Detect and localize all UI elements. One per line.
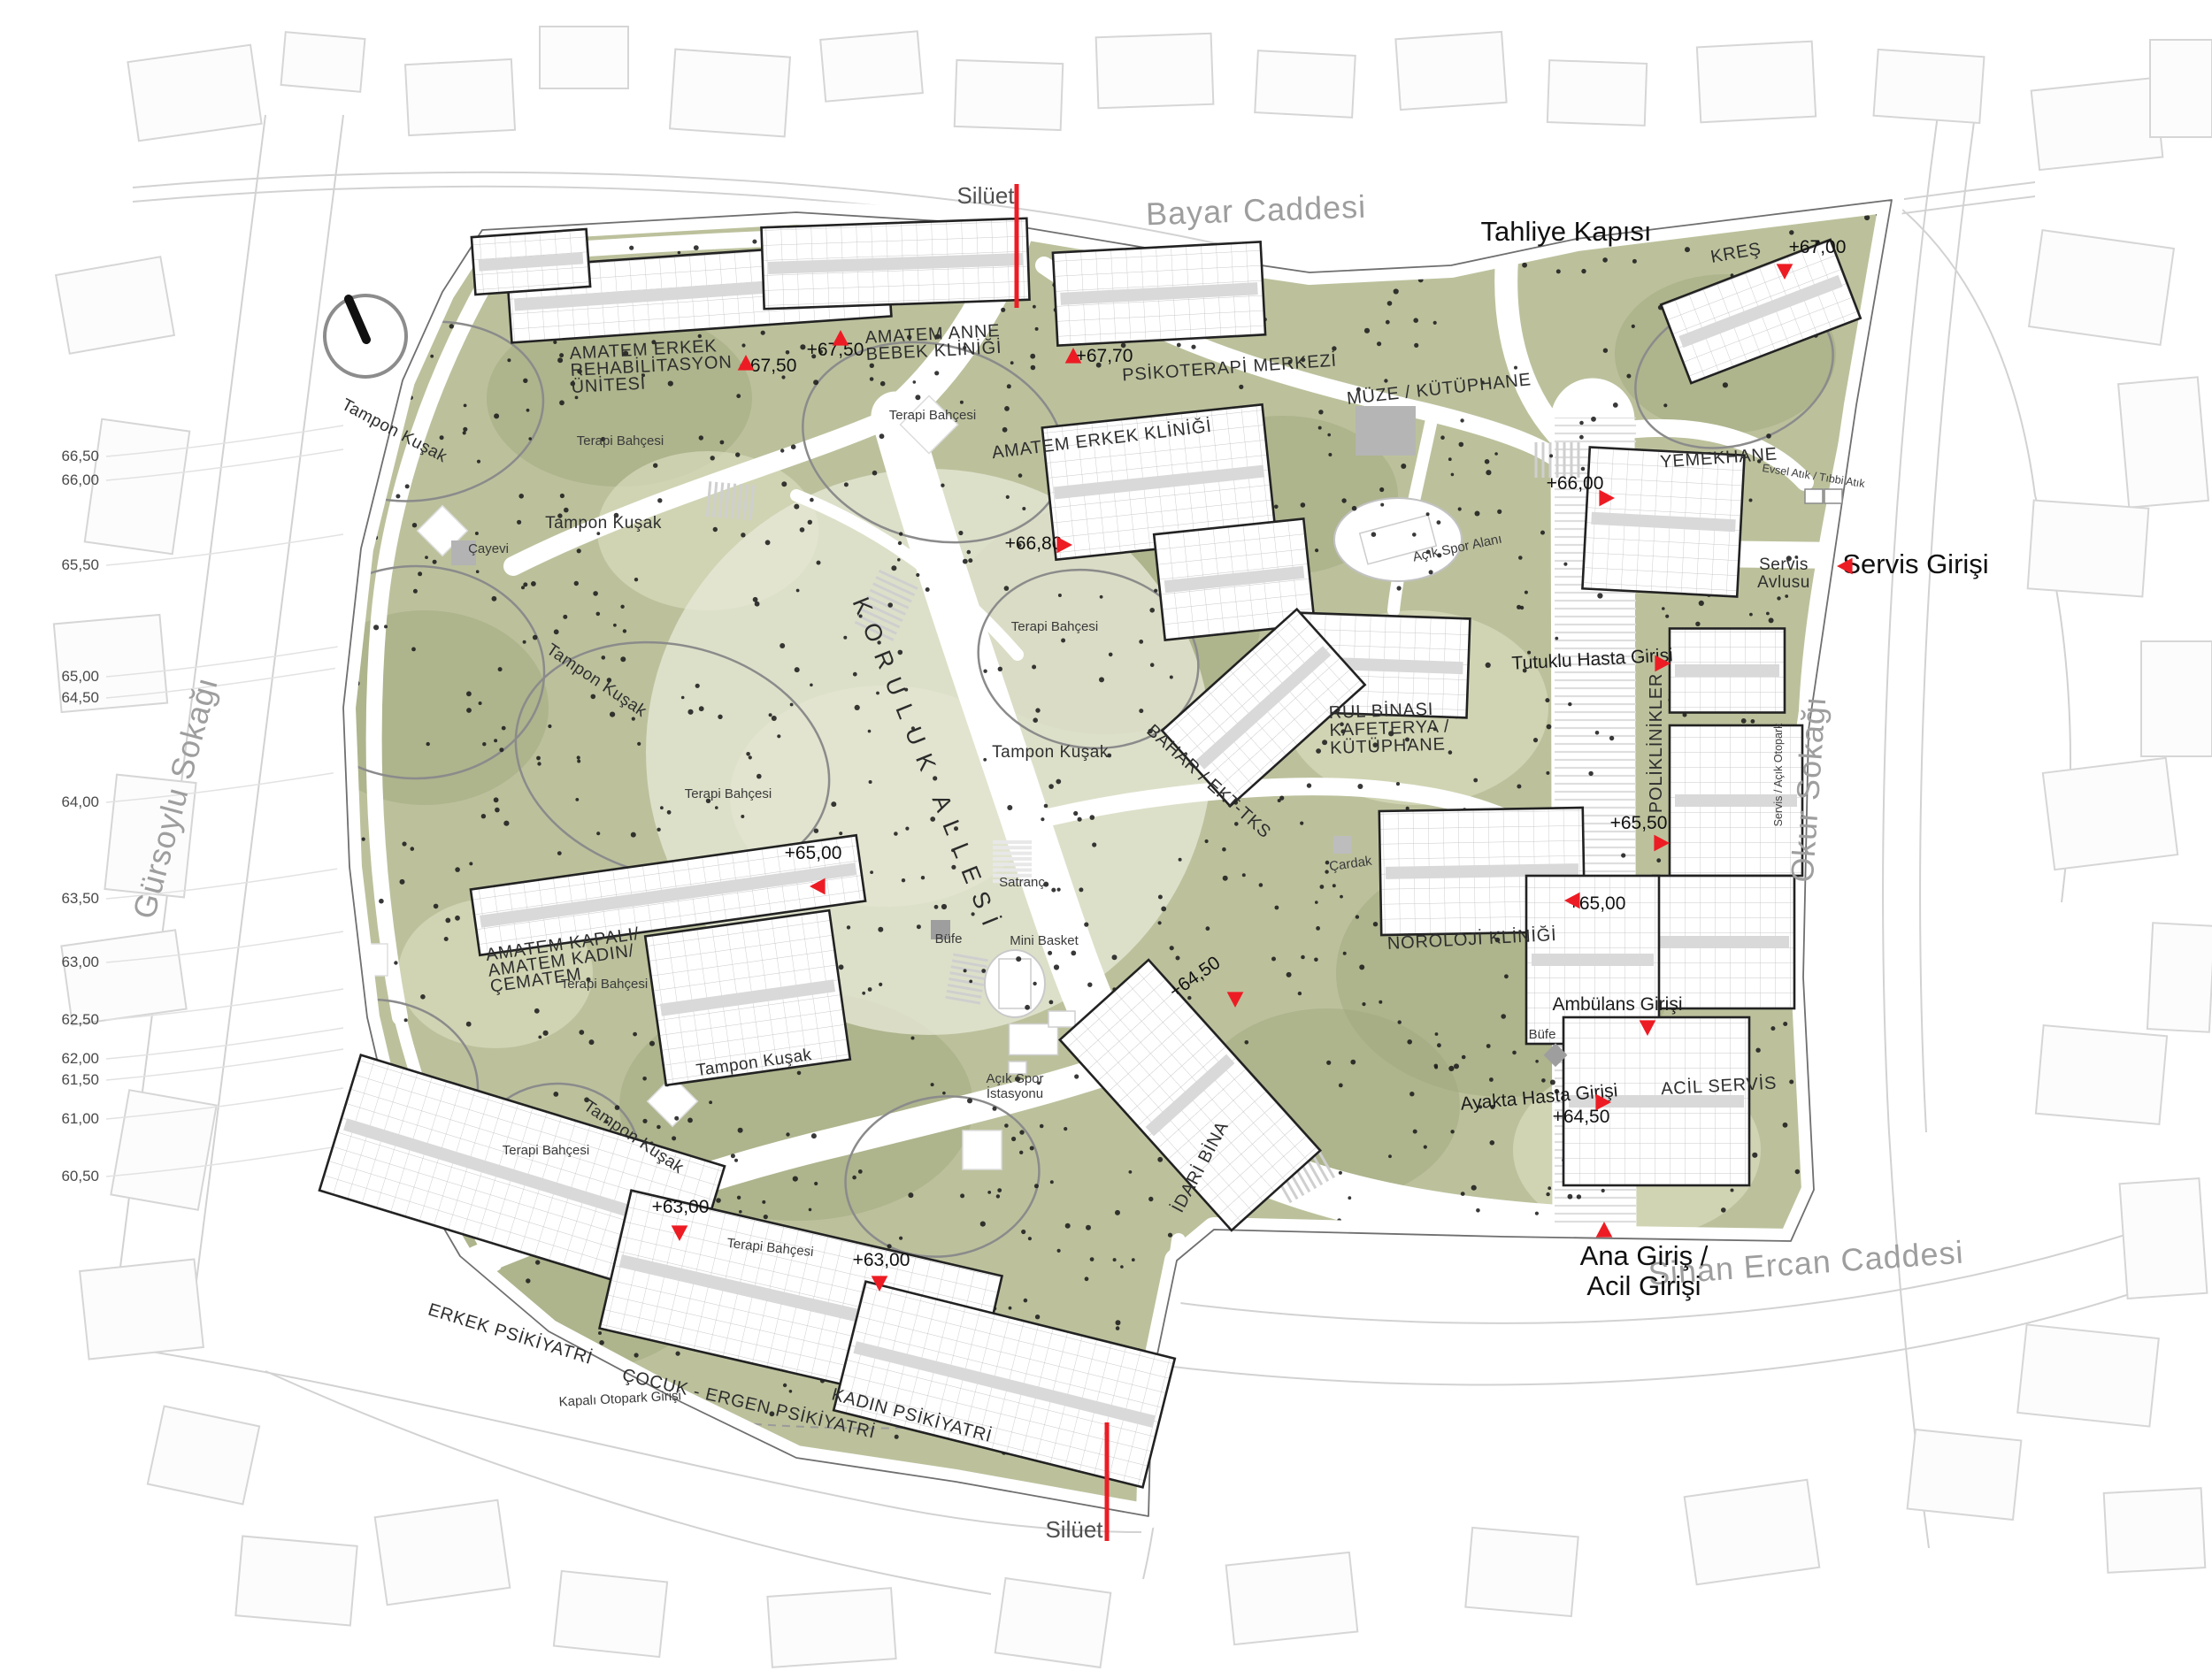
terapi-bahcesi-label-2-text: Terapi Bahçesi <box>1011 619 1098 634</box>
contour-label-3: 65,00 <box>61 668 99 685</box>
spot-elevation-12: +63,00 <box>853 1250 910 1270</box>
contour-label-0-text: 66,50 <box>61 448 99 464</box>
north-compass <box>325 295 406 377</box>
context-building <box>127 45 261 142</box>
context-building <box>1908 1430 2022 1520</box>
terapi-bahcesi-label-0-text: Terapi Bahçesi <box>577 433 664 448</box>
contour-label-10-text: 61,50 <box>61 1071 99 1088</box>
context-building <box>2118 377 2208 507</box>
feature-label-servis-avlusu-text: Servis <box>1759 556 1809 574</box>
bld-amatem-anne-bebek <box>761 218 1029 309</box>
bld-psikoterapi-merkezi <box>1053 241 1265 345</box>
spot-elevation-11: +63,00 <box>652 1197 710 1217</box>
context-building <box>405 59 515 135</box>
spot-elevation-6: +65,50 <box>1610 813 1668 833</box>
feature-label-servis-acik-otopark: Servis / Açık Otopark <box>1772 723 1785 826</box>
context-building <box>2104 1488 2206 1573</box>
contour-label-6: 63,50 <box>61 890 99 907</box>
entrance-label-tahliye-kapisi-text: Tahliye Kapısı <box>1481 216 1652 247</box>
building-label-poliklinikler: POLİKLİNİKLER <box>1646 673 1666 813</box>
contour-label-11: 61,00 <box>61 1110 99 1127</box>
feature-label-bufe-2-text: Büfe <box>1529 1027 1556 1042</box>
spot-elevation-5-text: +66,00 <box>1547 473 1604 494</box>
feature-label-satranc-text: Satranç <box>999 875 1045 890</box>
garden-platform <box>963 1131 1002 1169</box>
contour-label-12: 60,50 <box>61 1168 99 1184</box>
context-building <box>2028 501 2149 597</box>
spot-elevation-4-text: +66,80 <box>1005 533 1063 554</box>
feature-label-servis-avlusu-text: Avlusu <box>1757 573 1810 592</box>
context-building <box>1226 1552 1358 1644</box>
contour-label-8-text: 62,50 <box>61 1011 99 1028</box>
spot-elevation-8: +65,00 <box>785 843 842 863</box>
tampon-kusak-label-0-text: Tampon Kuşak <box>545 514 662 533</box>
building-label-amatem-erkek-rehabilitasyon-text: ÜNİTESİ <box>571 373 647 397</box>
spot-elevation-8-text: +65,00 <box>785 843 842 863</box>
feature-label-cayevi: Çayevi <box>468 541 509 556</box>
muze-kutuphane-footprint <box>1356 406 1416 456</box>
feature-label-bufe-1-text: Büfe <box>935 931 963 947</box>
contour-label-8: 62,50 <box>61 1011 99 1028</box>
context-building <box>1465 1528 1578 1616</box>
bld-amatem-rehab-wing <box>472 229 590 295</box>
feature-label-bufe-2: Büfe <box>1529 1027 1556 1042</box>
contour-label-11-text: 61,00 <box>61 1110 99 1127</box>
street-label-bayar-caddesi-text: Bayar Caddesi <box>1145 188 1366 233</box>
spot-elevation-3-text: +67,00 <box>1789 237 1847 257</box>
building-label-amatem-anne-bebek: AMATEM ANNEBEBEK KLİNİĞİ <box>864 321 1002 364</box>
contour-label-2-text: 65,50 <box>61 556 99 573</box>
entrance-label-ana-giris-text: Acil Girişi <box>1586 1270 1701 1301</box>
contour-label-7-text: 63,00 <box>61 954 99 970</box>
spot-elevation-12-text: +63,00 <box>853 1250 910 1270</box>
context-building <box>2120 1178 2208 1299</box>
context-building <box>1548 60 1647 126</box>
contour-label-1-text: 66,00 <box>61 471 99 488</box>
feature-label-acik-spor-istasyonu-text: Açık Spor <box>986 1071 1043 1086</box>
building-label-poliklinikler-text: POLİKLİNİKLER <box>1646 673 1666 813</box>
context-building <box>995 1578 1111 1667</box>
context-building <box>955 60 1064 130</box>
spot-elevation-10: +64,50 <box>1553 1107 1610 1127</box>
context-building <box>375 1500 511 1606</box>
contour-label-12-text: 60,50 <box>61 1168 99 1184</box>
feature-label-cayevi-text: Çayevi <box>468 541 509 556</box>
entrance-label-servis-girisi-text: Servis Girişi <box>1842 548 1988 579</box>
contour-label-9-text: 62,00 <box>61 1050 99 1067</box>
gate-label-ambulans-girisi-text: Ambülans Girişi <box>1552 994 1682 1015</box>
terapi-bahcesi-label-3: Terapi Bahçesi <box>685 786 772 801</box>
feature-label-acik-spor-istasyonu: Açık Sporİstasyonu <box>986 1071 1043 1101</box>
entrance-label-ana-giris-text: Ana Giriş / <box>1580 1240 1709 1271</box>
terapi-bahcesi-label-3-text: Terapi Bahçesi <box>685 786 772 801</box>
contour-label-6-text: 63,50 <box>61 890 99 907</box>
feature-label-mini-basket-text: Mini Basket <box>1010 933 1079 948</box>
context-building <box>820 31 923 101</box>
feature-label-bufe-1: Büfe <box>935 931 963 947</box>
entrance-label-ana-giris: Ana Giriş /Acil Girişi <box>1580 1240 1709 1301</box>
bld-poliklinik-c <box>1653 876 1794 1008</box>
spot-elevation-2-text: +67,70 <box>1076 346 1133 366</box>
terapi-bahcesi-label-4: Terapi Bahçesi <box>561 977 648 992</box>
atik-unit-b <box>1824 489 1842 503</box>
entrance-label-tahliye-kapisi: Tahliye Kapısı <box>1481 216 1652 247</box>
context-building <box>111 1090 216 1210</box>
context-building <box>1096 34 1214 108</box>
context-building <box>1697 42 1816 123</box>
section-label-siluet-bottom: Silüet <box>1045 1516 1103 1543</box>
context-building <box>1255 50 1356 118</box>
contour-label-7: 63,00 <box>61 954 99 970</box>
context-building <box>1395 32 1506 110</box>
context-building <box>540 27 628 88</box>
spot-elevation-11-text: +63,00 <box>652 1197 710 1217</box>
context-building <box>2017 1324 2159 1426</box>
terapi-bahcesi-label-1: Terapi Bahçesi <box>889 408 976 423</box>
feature-label-satranc: Satranç <box>999 875 1045 890</box>
section-label-siluet-top: Silüet <box>956 182 1015 209</box>
contour-label-4: 64,50 <box>61 689 99 706</box>
feature-label-servis-acik-otopark-text: Servis / Açık Otopark <box>1772 723 1785 826</box>
context-building <box>281 32 365 92</box>
contour-label-1: 66,00 <box>61 471 99 488</box>
feature-label-acik-spor-istasyonu-text: İstasyonu <box>987 1085 1043 1101</box>
context-building <box>554 1571 667 1657</box>
spot-elevation-3: +67,00 <box>1789 237 1847 257</box>
spot-elevation-4: +66,80 <box>1005 533 1063 554</box>
context-building <box>1685 1480 1820 1585</box>
context-building <box>767 1588 895 1667</box>
terapi-bahcesi-label-5-text: Terapi Bahçesi <box>503 1143 589 1158</box>
context-building <box>1874 50 1985 123</box>
master-plan-svg: Bayar CaddesiGürsoylu SokağıOkur SokağıS… <box>0 0 2212 1671</box>
tampon-kusak-label-3: Tampon Kuşak <box>992 743 1109 762</box>
contour-label-3-text: 65,00 <box>61 668 99 685</box>
terapi-bahcesi-label-1-text: Terapi Bahçesi <box>889 408 976 423</box>
contour-label-5-text: 64,00 <box>61 793 99 810</box>
context-building <box>2147 923 2212 1031</box>
context-building <box>235 1537 357 1626</box>
atik-unit-a <box>1805 489 1823 503</box>
context-building <box>2141 641 2212 756</box>
context-building <box>2036 1025 2167 1124</box>
context-building <box>2029 230 2174 345</box>
site-plan-canvas: Bayar CaddesiGürsoylu SokağıOkur SokağıS… <box>0 0 2212 1671</box>
context-building <box>2043 758 2177 870</box>
context-road-6 <box>1883 115 1938 1548</box>
context-building <box>2032 78 2163 170</box>
stair-hatch <box>1536 442 1578 478</box>
contour-label-5: 64,00 <box>61 793 99 810</box>
contour-label-4-text: 64,50 <box>61 689 99 706</box>
terapi-bahcesi-label-4-text: Terapi Bahçesi <box>561 977 648 992</box>
context-building <box>80 1259 204 1359</box>
contour-label-0: 66,50 <box>61 448 99 464</box>
entrance-label-servis-girisi: Servis Girişi <box>1842 548 1988 579</box>
context-building <box>85 419 190 555</box>
spor-istasyonu-platform <box>1048 1011 1075 1027</box>
context-building <box>670 50 790 137</box>
context-building <box>2150 40 2212 137</box>
terapi-bahcesi-label-0: Terapi Bahçesi <box>577 433 664 448</box>
feature-label-kapali-otopark-girisi: Kapalı Otopark Girişi <box>558 1388 681 1409</box>
tampon-kusak-label-0: Tampon Kuşak <box>545 514 662 533</box>
bld-poliklinik-a <box>1670 629 1785 713</box>
spot-elevation-5: +66,00 <box>1547 473 1604 494</box>
tampon-kusak-label-3-text: Tampon Kuşak <box>992 743 1109 762</box>
section-label-siluet-bottom-text: Silüet <box>1045 1516 1103 1543</box>
contour-label-10: 61,50 <box>61 1071 99 1088</box>
context-building <box>56 257 174 353</box>
contour-label-2: 65,50 <box>61 556 99 573</box>
terapi-bahcesi-label-2: Terapi Bahçesi <box>1011 619 1098 634</box>
spor-istasyonu-platform <box>1010 1024 1058 1055</box>
feature-label-servis-avlusu: ServisAvlusu <box>1757 556 1810 592</box>
context-road-7 <box>1920 115 1975 1132</box>
spot-elevation-6-text: +65,50 <box>1610 813 1668 833</box>
cardak-structure <box>1333 836 1351 854</box>
context-building <box>148 1407 259 1505</box>
spot-elevation-10-text: +64,50 <box>1553 1107 1610 1127</box>
spot-elevation-2: +67,70 <box>1076 346 1133 366</box>
section-label-siluet-top-text: Silüet <box>956 182 1015 209</box>
building-label-rul-binasi: RUL BİNASIKAFETERYA /KÜTÜPHANE <box>1328 699 1449 758</box>
compass-needle <box>349 299 366 340</box>
context-road-11 <box>1891 200 2035 495</box>
feature-label-mini-basket: Mini Basket <box>1010 933 1079 948</box>
feature-label-kapali-otopark-girisi-text: Kapalı Otopark Girişi <box>558 1388 681 1409</box>
building-label-rul-binasi-text: KÜTÜPHANE <box>1330 734 1446 758</box>
street-label-bayar-caddesi: Bayar Caddesi <box>1145 188 1366 233</box>
contour-label-9: 62,00 <box>61 1050 99 1067</box>
gate-label-ambulans-girisi: Ambülans Girişi <box>1552 994 1682 1015</box>
terapi-bahcesi-label-5: Terapi Bahçesi <box>503 1143 589 1158</box>
